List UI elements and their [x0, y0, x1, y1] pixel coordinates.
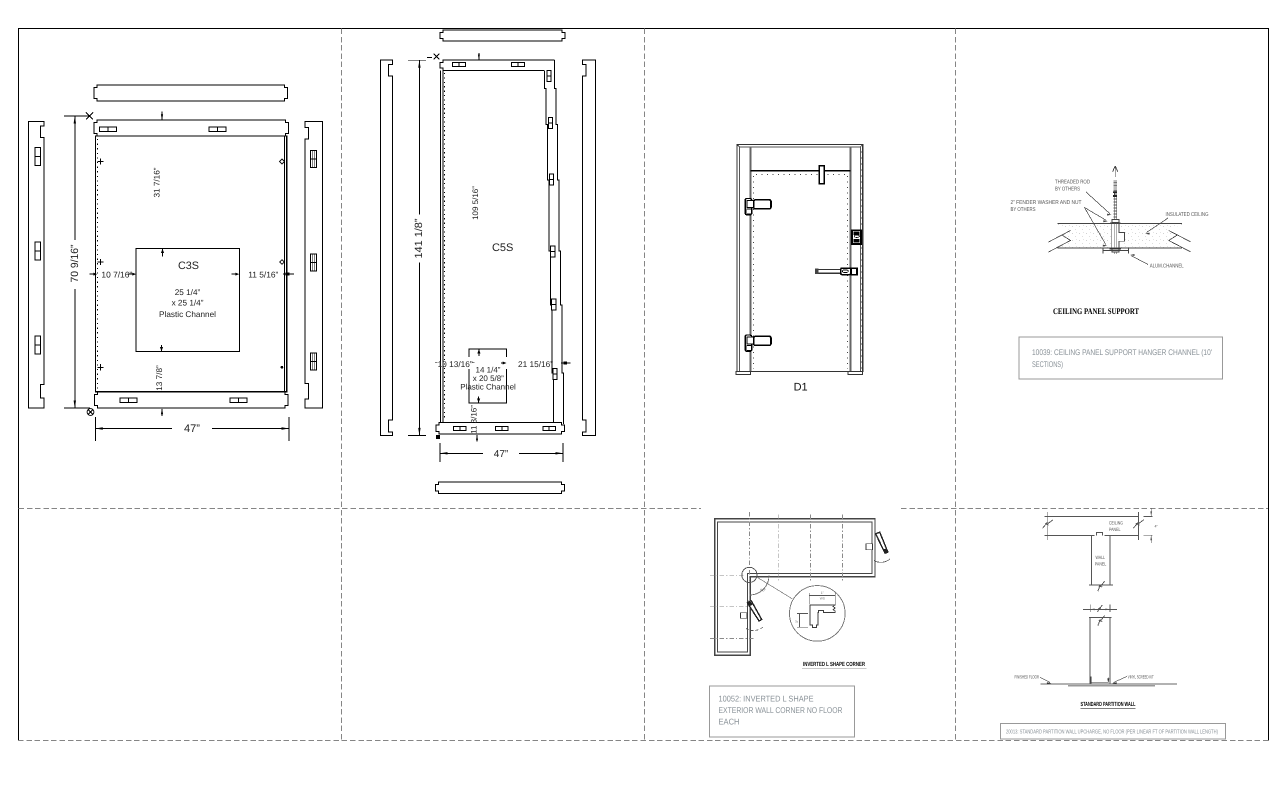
- svg-text:EXTERIOR WALL CORNER NO FLOOR: EXTERIOR WALL CORNER NO FLOOR: [719, 705, 843, 715]
- svg-text:11 5/16”: 11 5/16”: [248, 269, 278, 279]
- svg-text:11 3/16”: 11 3/16”: [469, 405, 478, 434]
- svg-text:C3S: C3S: [178, 260, 199, 272]
- svg-text:47”: 47”: [184, 423, 200, 435]
- svg-text:10 7/16”: 10 7/16”: [101, 269, 132, 279]
- svg-text:x 25 1/4”: x 25 1/4”: [172, 299, 204, 308]
- svg-text:10 13/16”: 10 13/16”: [438, 359, 473, 369]
- svg-text:13 7/8”: 13 7/8”: [155, 365, 164, 391]
- svg-text:31 7/16”: 31 7/16”: [153, 167, 162, 197]
- svg-text:2” FENDER WASHER AND NUT: 2” FENDER WASHER AND NUT: [1011, 200, 1083, 206]
- svg-text:WALL: WALL: [1096, 555, 1106, 561]
- svg-text:WS: WS: [820, 597, 825, 601]
- svg-text:21 15/16”: 21 15/16”: [518, 359, 553, 369]
- svg-text:INSULATED CEILING: INSULATED CEILING: [1166, 212, 1209, 218]
- svg-text:90°: 90°: [760, 588, 766, 593]
- svg-text:BY OTHERS: BY OTHERS: [1011, 207, 1036, 213]
- svg-text:CEILING PANEL SUPPORT: CEILING PANEL SUPPORT: [1053, 306, 1139, 316]
- svg-text:109 5/16”: 109 5/16”: [471, 186, 480, 220]
- svg-text:10052: INVERTED L SHAPE: 10052: INVERTED L SHAPE: [719, 694, 814, 704]
- svg-text:PANEL: PANEL: [1095, 562, 1107, 568]
- svg-text:3”: 3”: [795, 620, 799, 623]
- svg-text:141 1/8”: 141 1/8”: [413, 218, 425, 259]
- svg-text:Plastic Channel: Plastic Channel: [460, 383, 516, 392]
- svg-text:VINYL SCREED KIT: VINYL SCREED KIT: [1128, 675, 1154, 681]
- svg-text:ALUM.CHANNEL: ALUM.CHANNEL: [1150, 264, 1184, 270]
- svg-text:BY OTHERS: BY OTHERS: [1055, 187, 1080, 193]
- svg-text:INVERTED L SHAPE CORNER: INVERTED L SHAPE CORNER: [803, 661, 865, 668]
- svg-text:D1: D1: [794, 381, 808, 393]
- svg-text:EACH: EACH: [719, 717, 740, 727]
- svg-text:Plastic Channel: Plastic Channel: [159, 310, 216, 319]
- svg-text:STANDARD PARTITION WALL: STANDARD PARTITION WALL: [1081, 701, 1136, 708]
- svg-text:PANEL: PANEL: [1109, 527, 1121, 533]
- svg-text:FINISHED FLOOR: FINISHED FLOOR: [1015, 675, 1040, 681]
- svg-text:10039: CEILING PANEL SUPPORT H: 10039: CEILING PANEL SUPPORT HANGER CHAN…: [1032, 348, 1212, 357]
- svg-text:C5S: C5S: [492, 242, 513, 254]
- svg-text:47”: 47”: [494, 449, 508, 460]
- svg-text:25 1/4”: 25 1/4”: [175, 288, 201, 297]
- svg-text:20013: STANDARD PARTITION WALL: 20013: STANDARD PARTITION WALL UPCHARGE,…: [1006, 729, 1218, 736]
- svg-text:THREADED ROD: THREADED ROD: [1055, 180, 1090, 186]
- svg-text:70 9/16”: 70 9/16”: [69, 244, 81, 282]
- svg-text:SECTIONS): SECTIONS): [1032, 360, 1063, 369]
- svg-text:CEILING: CEILING: [1109, 521, 1123, 527]
